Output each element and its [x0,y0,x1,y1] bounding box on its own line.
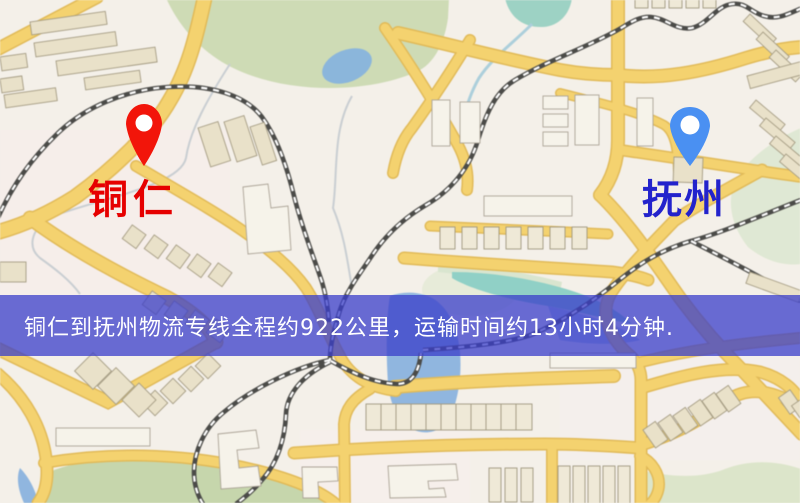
map-view: 铜仁 抚州 铜仁到抚州物流专线全程约922公里，运输时间约13小时4分钟. [0,0,800,503]
route-info-banner: 铜仁到抚州物流专线全程约922公里，运输时间约13小时4分钟. [0,295,800,356]
route-info-text: 铜仁到抚州物流专线全程约922公里，运输时间约13小时4分钟. [24,310,674,342]
origin-pin-hole [136,115,153,132]
origin-pin-icon[interactable] [124,100,164,168]
destination-pin-hole [681,116,700,135]
destination-pin-icon[interactable] [667,104,713,168]
map-canvas[interactable] [0,0,800,503]
destination-label: 抚州 [642,180,726,220]
origin-label: 铜仁 [88,180,178,220]
